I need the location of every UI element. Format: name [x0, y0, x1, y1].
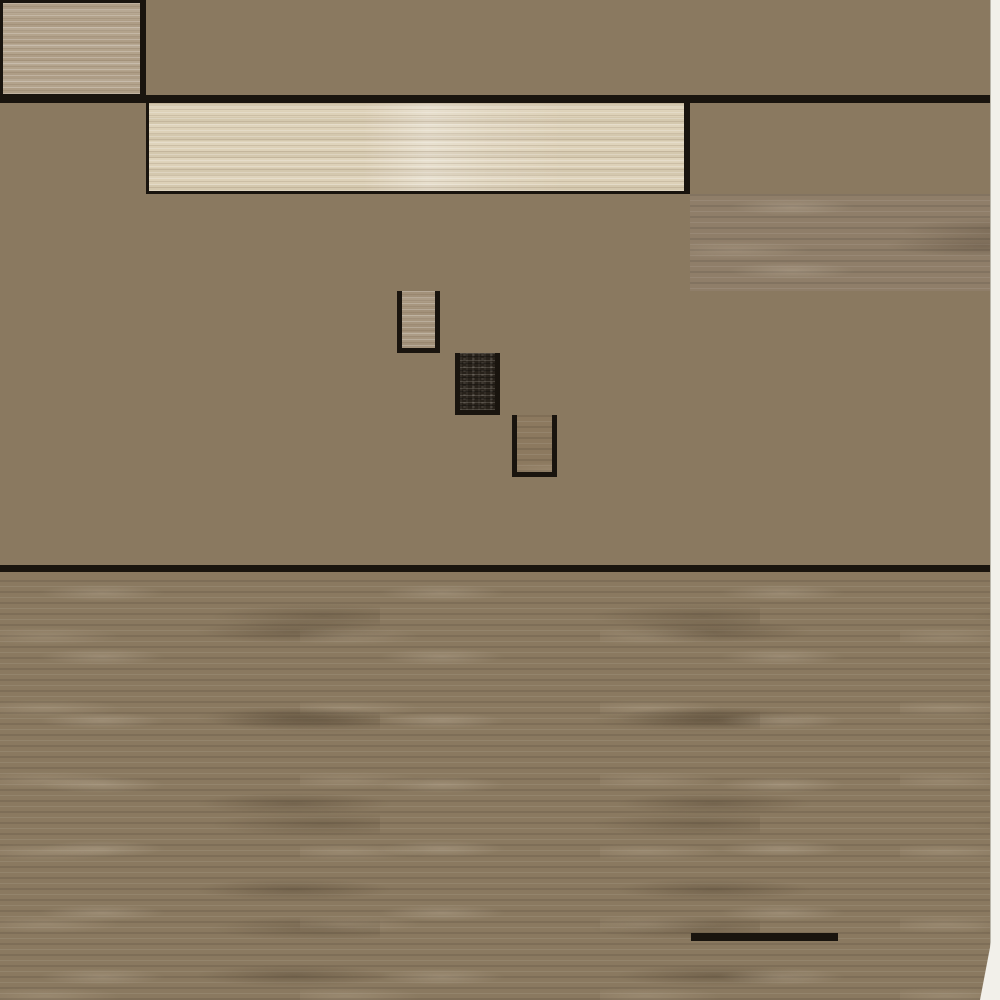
rug-top-left-taupe-panel: [0, 0, 146, 97]
rug-divider-line-middle: [0, 565, 990, 572]
photo-white-edge: [990, 0, 1000, 1000]
rug-photo: [0, 0, 1000, 1000]
rug-dark-panel-bottom-border: [691, 933, 838, 941]
rug-top-bar-taupe: [397, 291, 440, 353]
rug-middle-brown-band: [0, 580, 990, 1000]
rug-top-bar-dark: [455, 353, 500, 415]
rug-top-cream-panel: [146, 97, 690, 194]
rug-top-bar-brown: [512, 415, 557, 477]
rug-divider-line-top: [0, 95, 990, 103]
rug-top-right-brown-panel: [690, 194, 990, 291]
